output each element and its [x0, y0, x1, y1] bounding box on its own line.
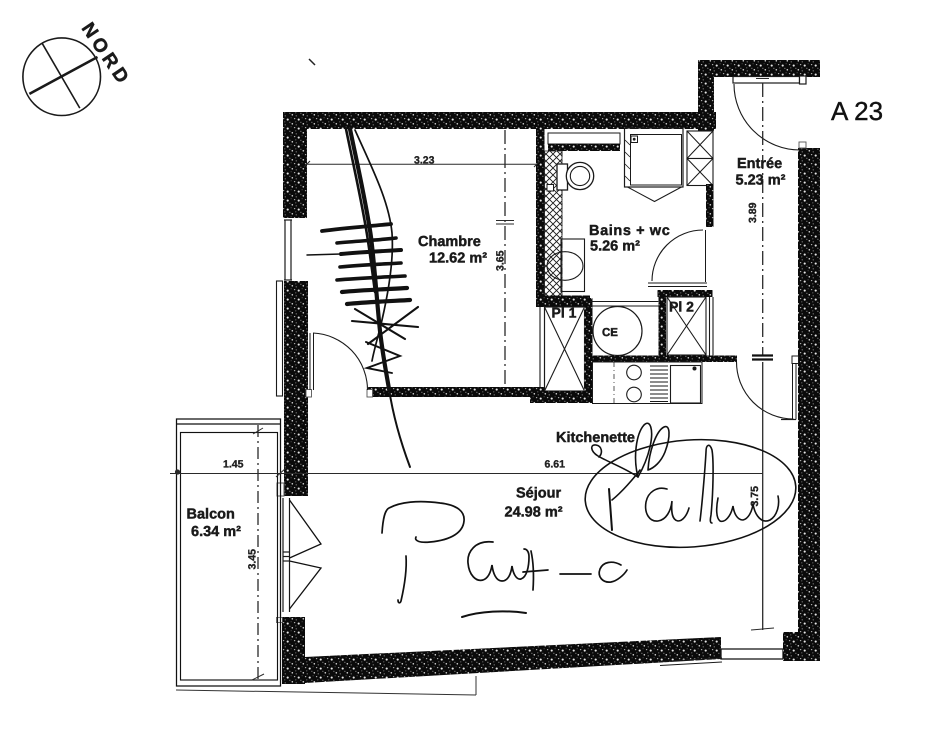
svg-text:3.75: 3.75 — [749, 486, 761, 507]
svg-text:3.23: 3.23 — [414, 155, 435, 167]
svg-text:6.61: 6.61 — [545, 459, 566, 471]
svg-text:Kitchenette: Kitchenette — [556, 430, 635, 446]
svg-text:Bains + wc: Bains + wc — [589, 223, 670, 239]
svg-text:1.45: 1.45 — [223, 459, 244, 471]
svg-text:Entrée: Entrée — [737, 156, 782, 172]
svg-text:3.65: 3.65 — [495, 250, 507, 271]
svg-text:A 23: A 23 — [831, 96, 883, 126]
svg-text:Balcon: Balcon — [187, 507, 235, 523]
svg-text:3.45: 3.45 — [247, 549, 259, 570]
svg-text:Pl 1: Pl 1 — [552, 305, 577, 321]
svg-text:5.23 m²: 5.23 m² — [736, 173, 786, 189]
svg-text:6.34 m²: 6.34 m² — [191, 524, 241, 540]
svg-text:24.98 m²: 24.98 m² — [505, 505, 563, 521]
svg-text:CE: CE — [602, 327, 618, 339]
svg-text:Séjour: Séjour — [516, 486, 561, 502]
svg-text:Chambre: Chambre — [418, 234, 481, 250]
svg-text:5.26 m²: 5.26 m² — [590, 239, 640, 255]
svg-text:3.89: 3.89 — [747, 202, 759, 223]
svg-text:Pl 2: Pl 2 — [669, 299, 694, 315]
svg-text:12.62 m²: 12.62 m² — [429, 251, 487, 267]
